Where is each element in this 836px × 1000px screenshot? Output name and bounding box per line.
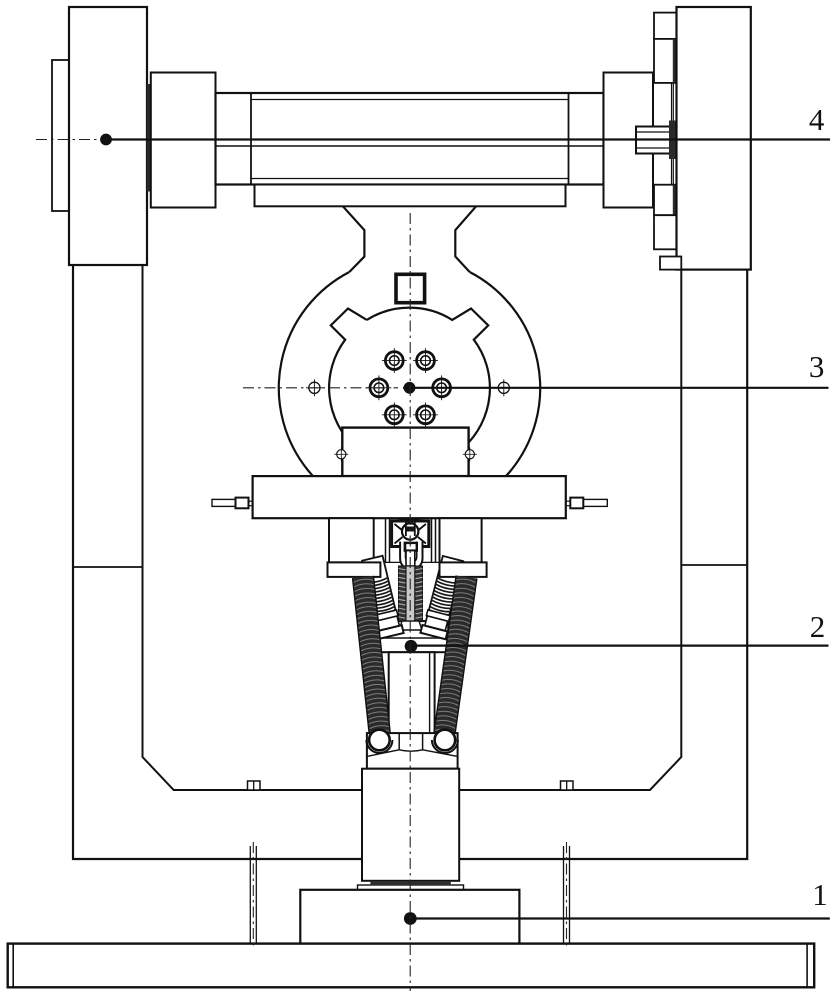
svg-text:3: 3 (809, 349, 825, 384)
svg-text:1: 1 (812, 877, 828, 912)
svg-text:2: 2 (810, 609, 826, 644)
svg-text:4: 4 (809, 102, 825, 137)
